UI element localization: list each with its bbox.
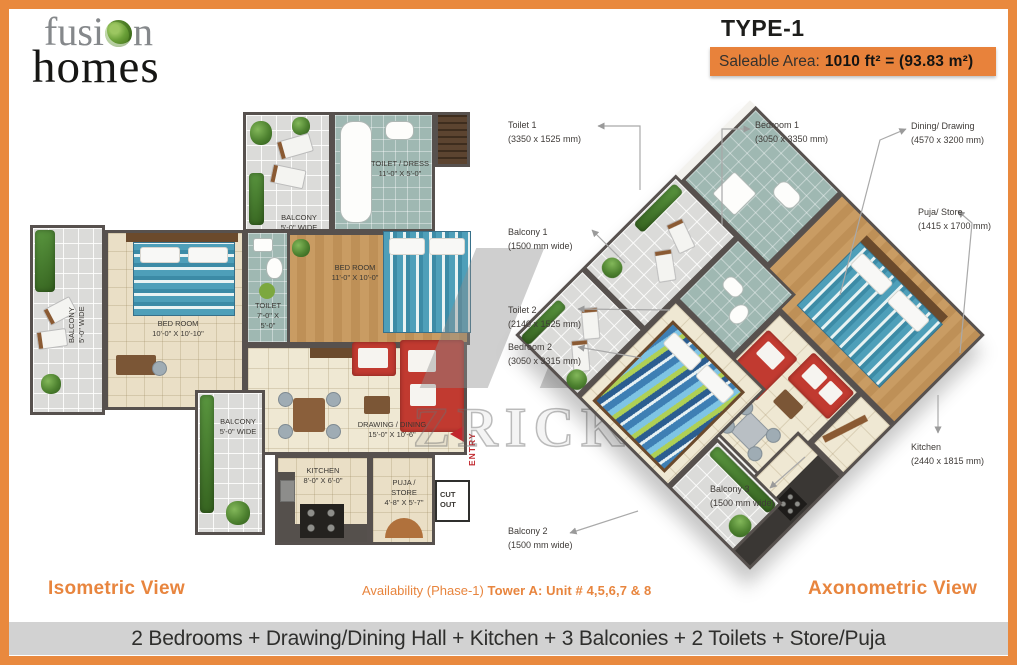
fusion-homes-logo: fusion homes: [30, 10, 210, 96]
callout-dining-drawing: Dining/ Drawing (4570 x 3200 mm): [911, 120, 984, 148]
availability-line: Availability (Phase-1) Tower A: Unit # 4…: [362, 583, 651, 598]
bath-rug: [259, 283, 275, 299]
coffee-table: [364, 396, 390, 414]
sink: [253, 238, 273, 252]
plant: [292, 239, 310, 257]
availability-prefix: Availability (Phase-1): [362, 583, 484, 598]
dining-table: [293, 398, 325, 432]
callout-puja-store: Puja/ Store (1415 x 1700 mm): [918, 206, 991, 234]
axonometric-view-label: Axonometric View: [808, 578, 977, 600]
isometric-view-label: Isometric View: [48, 578, 185, 600]
plant: [250, 121, 272, 145]
callout-balcony2: Balcony 2 (1500 mm wide): [508, 525, 573, 553]
kitchen-room: KITCHEN 8'-0" X 6'-0": [275, 455, 370, 545]
stove: [300, 504, 344, 538]
features-strip: 2 Bedrooms + Drawing/Dining Hall + Kitch…: [9, 622, 1008, 655]
room-label-balcony-left: BALCONY 5'-0" WIDE: [67, 292, 87, 358]
saleable-area-label: Saleable Area:: [719, 53, 820, 71]
toilet-wc: [266, 257, 283, 279]
room-label-balcony-top: BALCONY 5'-0" WIDE: [270, 213, 328, 233]
bedroom2-room: BED ROOM 10'-0" X 10'-10": [105, 230, 245, 410]
sink: [385, 121, 414, 140]
dining-chair: [326, 424, 341, 439]
callout-balcony1: Balcony 1 (1500 mm wide): [508, 226, 573, 254]
logo-line2: homes: [32, 44, 160, 91]
plant: [226, 501, 250, 525]
pillow: [188, 247, 228, 263]
availability-units: Tower A: Unit # 4,5,6,7 & 8: [488, 583, 652, 598]
desk-chair: [152, 361, 167, 376]
cut-out-box: CUT OUT: [435, 480, 470, 522]
plant: [41, 374, 61, 394]
puja-arc: [385, 518, 423, 538]
wardrobe: [435, 112, 470, 167]
saleable-area-badge: Saleable Area: 1010 ft² = (93.83 m²): [710, 47, 996, 76]
room-label-puja-store: PUJA / STORE 4'-8" X 5'-7": [379, 478, 429, 508]
balcony-left-room: BALCONY 5'-0" WIDE: [30, 225, 105, 415]
bedroom1-room: BED ROOM 11'-0" X 10'-0": [285, 232, 470, 345]
page-title: TYPE-1: [721, 15, 805, 42]
lounger: [36, 328, 68, 350]
pillow: [140, 247, 180, 263]
room-label-kitchen: KITCHEN 8'-0" X 6'-0": [292, 466, 354, 486]
room-label-toilet-dress: TOILET / DRESS 11'-0" X 5'-0": [367, 159, 433, 179]
cushion: [358, 348, 388, 368]
room-label-bedroom1: BED ROOM 11'-0" X 10'-0": [316, 263, 394, 283]
callout-kitchen: Kitchen (2440 x 1815 mm): [911, 441, 984, 469]
room-label-balcony-bottom: BALCONY 5'-0" WIDE: [215, 417, 261, 437]
room-label-bedroom2: BED ROOM 10'-0" X 10'-10": [138, 319, 218, 339]
hedge: [249, 173, 264, 225]
isometric-floor-plan: BALCONY 5'-0" WIDE TOILET / DRESS 11'-0"…: [30, 112, 470, 552]
balcony-top-room: BALCONY 5'-0" WIDE: [243, 112, 332, 232]
axonometric-floor-plan: Toilet 1 (3350 x 1525 mm) Bedroom 1 (305…: [490, 95, 1017, 575]
toilet-mid-room: TOILET 7'-0" X 5'-0": [245, 230, 290, 345]
callout-bedroom2: Bedroom 2 (3050 x 3315 mm): [508, 341, 581, 369]
bed: [133, 242, 235, 316]
brochure-page: fusion homes TYPE-1 Saleable Area: 1010 …: [0, 0, 1017, 665]
hedge: [35, 230, 55, 292]
pillow: [389, 238, 425, 255]
lounger: [276, 133, 314, 161]
hedge: [200, 395, 214, 513]
callout-toilet2: Toilet 2 (2140 x 1525 mm): [508, 304, 581, 332]
desk: [116, 355, 156, 375]
headboard: [126, 233, 238, 242]
puja-store-room: PUJA / STORE 4'-8" X 5'-7": [370, 455, 435, 545]
callout-balcony3: Balcony 3 (1500 mm wide): [710, 483, 775, 511]
dining-chair: [326, 392, 341, 407]
cut-out-label: CUT OUT: [440, 490, 466, 510]
dining-chair: [278, 424, 293, 439]
pillow: [429, 238, 465, 255]
saleable-area-value: 1010 ft² = (93.83 m²): [825, 53, 974, 71]
callout-toilet1: Toilet 1 (3350 x 1525 mm): [508, 119, 581, 147]
toilet-dress-room: TOILET / DRESS 11'-0" X 5'-0": [332, 112, 435, 232]
room-label-toilet-mid: TOILET 7'-0" X 5'-0": [250, 301, 286, 331]
callout-bedroom1: Bedroom 1 (3050 x 3350 mm): [755, 119, 828, 147]
lounger: [269, 164, 306, 190]
balcony-bottom-room: BALCONY 5'-0" WIDE: [195, 390, 265, 535]
armchair: [352, 342, 396, 376]
dining-chair: [278, 392, 293, 407]
dining-set: [278, 384, 340, 446]
